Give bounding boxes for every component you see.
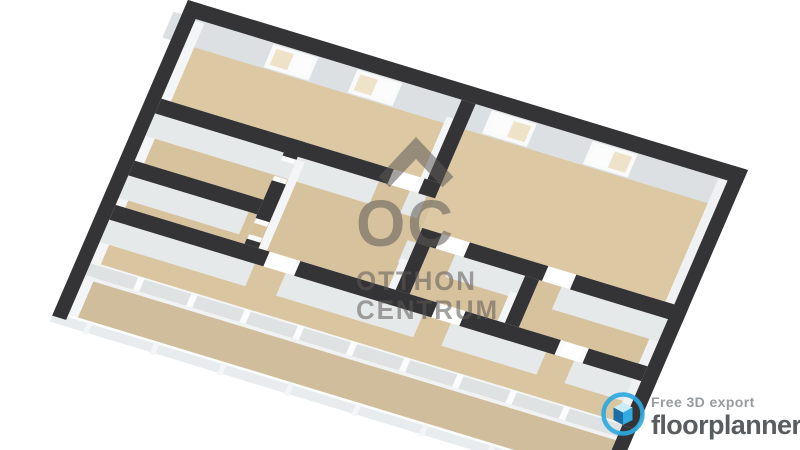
roof-icon <box>376 136 456 188</box>
badge-free-label: Free 3D export <box>651 395 800 409</box>
watermark-line2: CENTRUM <box>356 296 510 324</box>
badge-text: Free 3D export floorplanner <box>651 389 800 439</box>
badge-brand-label: floorplanner <box>651 412 800 439</box>
floorplan-export-view: OC OTTHON CENTRUM Free 3D export floorpl… <box>0 0 800 450</box>
floorplanner-badge: Free 3D export floorplanner <box>598 389 800 439</box>
otthon-centrum-watermark: OC OTTHON CENTRUM <box>356 136 516 324</box>
watermark-line1: OTTHON <box>356 267 510 295</box>
floorplanner-cube-icon <box>598 389 648 439</box>
watermark-monogram: OC <box>356 198 510 249</box>
